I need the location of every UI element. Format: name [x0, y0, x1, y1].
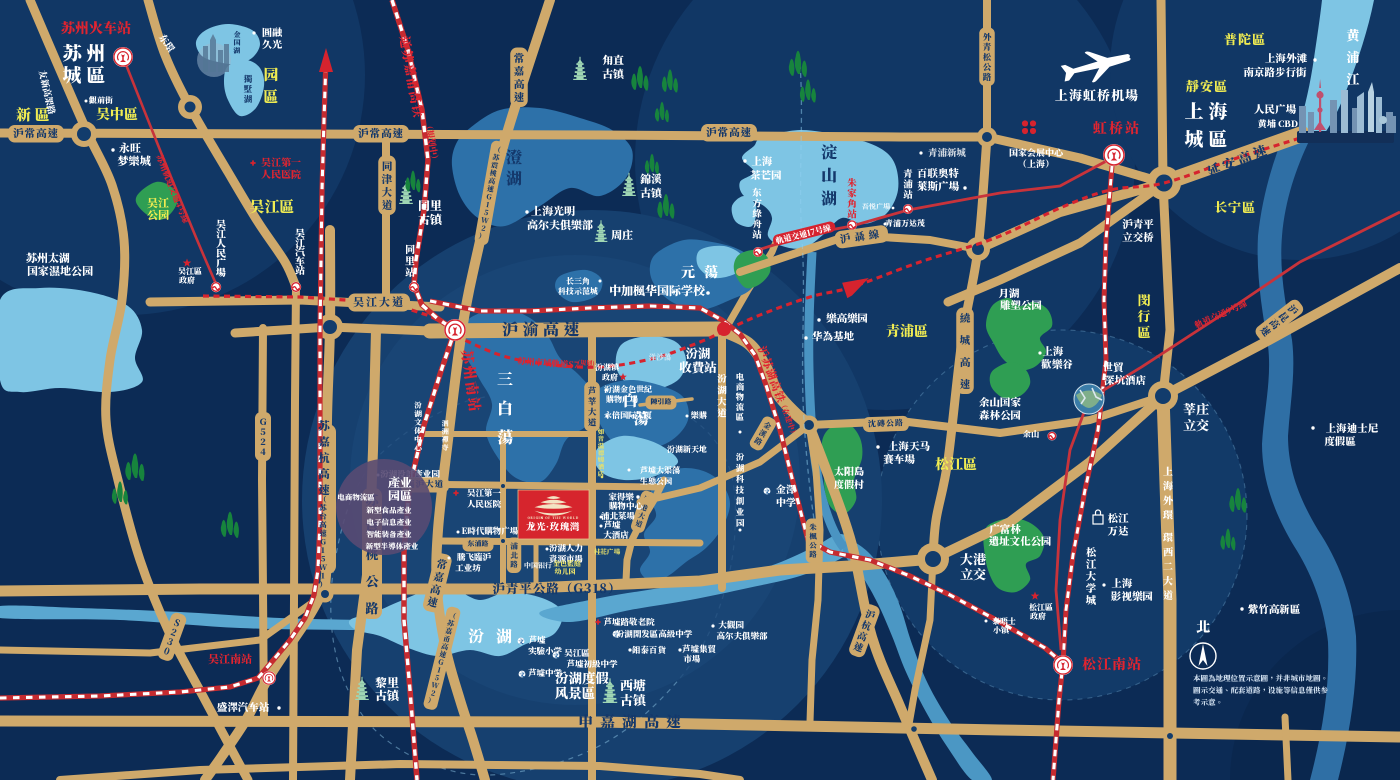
svg-text:公园: 公园 — [146, 207, 170, 223]
svg-text:樂高樂园: 樂高樂园 — [826, 311, 868, 326]
svg-text:歡樂谷: 歡樂谷 — [1041, 357, 1073, 372]
svg-text:工业坊: 工业坊 — [455, 562, 481, 574]
svg-text:上海外滩: 上海外滩 — [1265, 51, 1307, 66]
svg-text:青浦新城: 青浦新城 — [928, 145, 967, 159]
svg-text:朱楓公路: 朱楓公路 — [808, 522, 817, 560]
svg-text:科技示范城: 科技示范城 — [557, 286, 598, 297]
svg-text:（上海）: （上海） — [1018, 157, 1054, 170]
svg-text:市場: 市場 — [683, 653, 701, 665]
svg-text:北: 北 — [1196, 617, 1210, 637]
svg-text:立交: 立交 — [960, 564, 986, 583]
svg-text:新型食品產业: 新型食品產业 — [367, 505, 412, 516]
svg-text:吾悦广場: 吾悦广場 — [861, 202, 891, 212]
svg-text:芦莘大道: 芦莘大道 — [588, 385, 597, 429]
svg-text:汾湖新天地: 汾湖新天地 — [667, 444, 707, 455]
svg-text:东方綠舟站: 东方綠舟站 — [751, 185, 762, 241]
svg-text:余山: 余山 — [1022, 429, 1039, 440]
svg-text:立交桥: 立交桥 — [1122, 230, 1154, 245]
svg-text:吴中區: 吴中區 — [96, 104, 138, 124]
svg-text:茶芒园: 茶芒园 — [750, 168, 782, 183]
svg-text:国家濕地公园: 国家濕地公园 — [27, 263, 94, 279]
svg-text:紫竹高新區: 紫竹高新區 — [1248, 602, 1301, 617]
svg-text:金国湖: 金国湖 — [234, 30, 242, 56]
svg-text:E時代購物广場: E時代購物广場 — [462, 525, 519, 537]
svg-text:上海外環: 上海外環 — [1162, 463, 1174, 522]
svg-text:松江區: 松江區 — [934, 454, 977, 474]
svg-text:古镇: 古镇 — [620, 690, 647, 709]
svg-text:东浦路: 东浦路 — [468, 539, 489, 549]
svg-text:长宁區: 长宁區 — [1214, 197, 1256, 216]
svg-text:圖示交通、配套道路，设施等信息僅供参: 圖示交通、配套道路，设施等信息僅供参 — [1193, 685, 1328, 696]
svg-text:电商物流區: 电商物流區 — [736, 371, 745, 423]
svg-text:高尔夫俱樂部: 高尔夫俱樂部 — [716, 630, 768, 642]
svg-text:本圖為地理位置示意圖，并非城市地圖。: 本圖為地理位置示意圖，并非城市地圖。 — [1193, 673, 1328, 684]
svg-text:电子信息產业: 电子信息產业 — [367, 517, 412, 528]
svg-text:新型半導体產业: 新型半導体產业 — [366, 541, 419, 552]
svg-text:青浦万达茂: 青浦万达茂 — [885, 218, 925, 229]
svg-text:华為基地: 华為基地 — [812, 329, 854, 344]
svg-text:沪常高速: 沪常高速 — [358, 126, 404, 141]
svg-text:淀山湖: 淀山湖 — [820, 140, 837, 209]
svg-text:環西二大道: 環西二大道 — [1162, 529, 1174, 602]
svg-text:周庄: 周庄 — [611, 227, 633, 243]
svg-text:普陀區: 普陀區 — [1224, 29, 1266, 48]
svg-text:小镇: 小镇 — [993, 625, 1010, 636]
svg-text:政府: 政府 — [602, 372, 619, 383]
svg-text:立交: 立交 — [1183, 415, 1209, 434]
svg-text:陳引路: 陳引路 — [651, 397, 672, 407]
svg-text:吴江汽车站: 吴江汽车站 — [295, 225, 305, 277]
svg-text:政府: 政府 — [1030, 611, 1047, 622]
svg-text:樂購: 樂購 — [691, 410, 708, 421]
svg-text:沪渝高速: 沪渝高速 — [502, 317, 584, 340]
svg-text:中国银行: 中国银行 — [524, 561, 552, 571]
svg-text:獨墅湖: 獨墅湖 — [244, 73, 253, 105]
svg-text:汾 湖: 汾 湖 — [468, 624, 516, 647]
svg-text:觀前街: 觀前街 — [89, 95, 113, 106]
svg-text:青浦區: 青浦區 — [886, 321, 928, 341]
svg-text:南京路步行街: 南京路步行街 — [1244, 65, 1307, 80]
svg-text:芦墟路敬老院: 芦墟路敬老院 — [603, 616, 655, 628]
svg-text:桂花广場: 桂花广場 — [594, 547, 621, 556]
svg-text:上海: 上海 — [752, 154, 773, 169]
svg-text:沈磚公路: 沈磚公路 — [868, 417, 904, 429]
svg-text:上 海: 上 海 — [1185, 97, 1228, 124]
svg-text:文: 文 — [519, 669, 525, 678]
svg-text:风景區: 风景區 — [555, 682, 596, 702]
svg-text:园區: 园區 — [388, 487, 412, 504]
svg-text:洋沙蕩: 洋沙蕩 — [649, 352, 672, 363]
svg-text:中加楓华国际学校: 中加楓华国际学校 — [609, 282, 705, 299]
svg-text:盛澤汽车站: 盛澤汽车站 — [217, 700, 270, 715]
svg-text:度假村: 度假村 — [834, 476, 864, 491]
svg-text:收費站: 收費站 — [679, 358, 717, 376]
svg-text:影视樂园: 影视樂园 — [1110, 589, 1153, 604]
svg-text:吴江區: 吴江區 — [249, 196, 294, 217]
svg-text:苏嘉杭高速: 苏嘉杭高速 — [317, 418, 330, 498]
svg-text:黄浦江: 黄浦江 — [1345, 25, 1359, 88]
svg-text:松江南站: 松江南站 — [1081, 654, 1142, 674]
svg-text:萊斯广場: 萊斯广場 — [917, 179, 959, 194]
svg-text:如音温德姆酒店: 如音温德姆酒店 — [597, 427, 605, 478]
svg-text:久光: 久光 — [262, 36, 282, 51]
svg-text:汾湖開发區高級中学: 汾湖開发區高級中学 — [616, 628, 693, 640]
svg-text:政府: 政府 — [179, 275, 196, 286]
svg-text:万达: 万达 — [1108, 524, 1130, 539]
svg-text:城 區: 城 區 — [63, 61, 106, 88]
svg-text:城 區: 城 區 — [1185, 125, 1228, 152]
svg-text:泗洲禪寺: 泗洲禪寺 — [442, 419, 449, 453]
svg-text:虹桥站: 虹桥站 — [1093, 118, 1141, 138]
svg-text:生態公园: 生態公园 — [639, 476, 672, 487]
svg-text:青浦站: 青浦站 — [903, 166, 913, 201]
svg-text:同里站: 同里站 — [405, 241, 415, 279]
svg-text:鉬泰百貨: 鉬泰百貨 — [632, 644, 667, 656]
svg-text:遺址文化公园: 遺址文化公园 — [989, 534, 1052, 549]
svg-text:沪常高速: 沪常高速 — [706, 125, 752, 140]
svg-text:梦樂城: 梦樂城 — [117, 153, 151, 169]
svg-text:古镇: 古镇 — [602, 66, 625, 82]
svg-text:外青松公路: 外青松公路 — [982, 31, 992, 83]
svg-text:汾湖文体中心: 汾湖文体中心 — [414, 400, 422, 454]
svg-text:电商物流區: 电商物流區 — [337, 492, 375, 503]
svg-text:苏州火车站: 苏州火车站 — [61, 18, 131, 38]
svg-text:大酒店: 大酒店 — [603, 529, 629, 541]
svg-text:龙光·玫瑰灣: 龙光·玫瑰灣 — [526, 519, 580, 533]
svg-text:吴江人民广場: 吴江人民广場 — [215, 216, 227, 279]
svg-text:吴江大道: 吴江大道 — [353, 294, 405, 310]
svg-text:园區: 园區 — [263, 64, 278, 107]
svg-text:三白蕩: 三白蕩 — [497, 367, 514, 448]
svg-text:深坑酒店: 深坑酒店 — [1103, 373, 1146, 388]
svg-text:芦墟大渠蕩: 芦墟大渠蕩 — [640, 465, 681, 476]
svg-text:文: 文 — [553, 650, 559, 659]
svg-text:文: 文 — [518, 636, 524, 645]
svg-text:沪常高速: 沪常高速 — [13, 126, 59, 141]
svg-text:黄埔 CBD: 黄埔 CBD — [1258, 117, 1298, 130]
svg-text:沪青平公路（G318）: 沪青平公路（G318） — [492, 579, 621, 597]
svg-text:度假區: 度假區 — [1324, 434, 1356, 449]
svg-text:古镇: 古镇 — [418, 211, 442, 228]
svg-text:閔行區: 閔行區 — [1137, 290, 1151, 341]
svg-text:松江大学城: 松江大学城 — [1085, 545, 1097, 608]
svg-text:考示意。: 考示意。 — [1193, 697, 1223, 708]
svg-text:常嘉高速: 常嘉高速 — [513, 51, 525, 105]
svg-text:吴江南站: 吴江南站 — [208, 651, 252, 667]
svg-text:文: 文 — [764, 486, 770, 495]
svg-text:森林公园: 森林公园 — [979, 408, 1021, 423]
svg-text:浦北路: 浦北路 — [510, 541, 518, 570]
svg-text:上海虹桥机場: 上海虹桥机場 — [1055, 85, 1139, 104]
svg-text:澄湖: 澄湖 — [506, 145, 522, 189]
svg-text:高尔夫俱樂部: 高尔夫俱樂部 — [527, 217, 594, 233]
svg-text:中学: 中学 — [776, 494, 797, 509]
svg-text:幼儿园: 幼儿园 — [554, 567, 576, 577]
svg-text:古镇: 古镇 — [640, 185, 663, 201]
svg-text:申嘉湖高速: 申嘉湖高速 — [578, 711, 688, 732]
svg-text:智能装备產业: 智能装备產业 — [367, 529, 412, 540]
svg-text:古镇: 古镇 — [375, 687, 399, 704]
svg-text:雕塑公园: 雕塑公园 — [1000, 298, 1042, 313]
svg-text:朱家角站: 朱家角站 — [847, 175, 857, 221]
svg-text:賽车場: 賽车場 — [883, 452, 915, 467]
svg-text:蕩: 蕩 — [633, 408, 648, 429]
svg-text:(規划): (規划) — [577, 357, 595, 367]
svg-text:汾湖大道: 汾湖大道 — [717, 371, 727, 420]
svg-text:人民广場: 人民广場 — [1254, 102, 1296, 117]
svg-text:靜安區: 靜安區 — [1186, 76, 1228, 95]
svg-text:人民医院: 人民医院 — [261, 166, 301, 181]
svg-text:元 蕩: 元 蕩 — [681, 262, 721, 282]
svg-text:汾湖科技創业园: 汾湖科技創业园 — [735, 451, 745, 529]
svg-text:人民医院: 人民医院 — [467, 498, 502, 510]
svg-text:同津大道: 同津大道 — [381, 159, 393, 213]
